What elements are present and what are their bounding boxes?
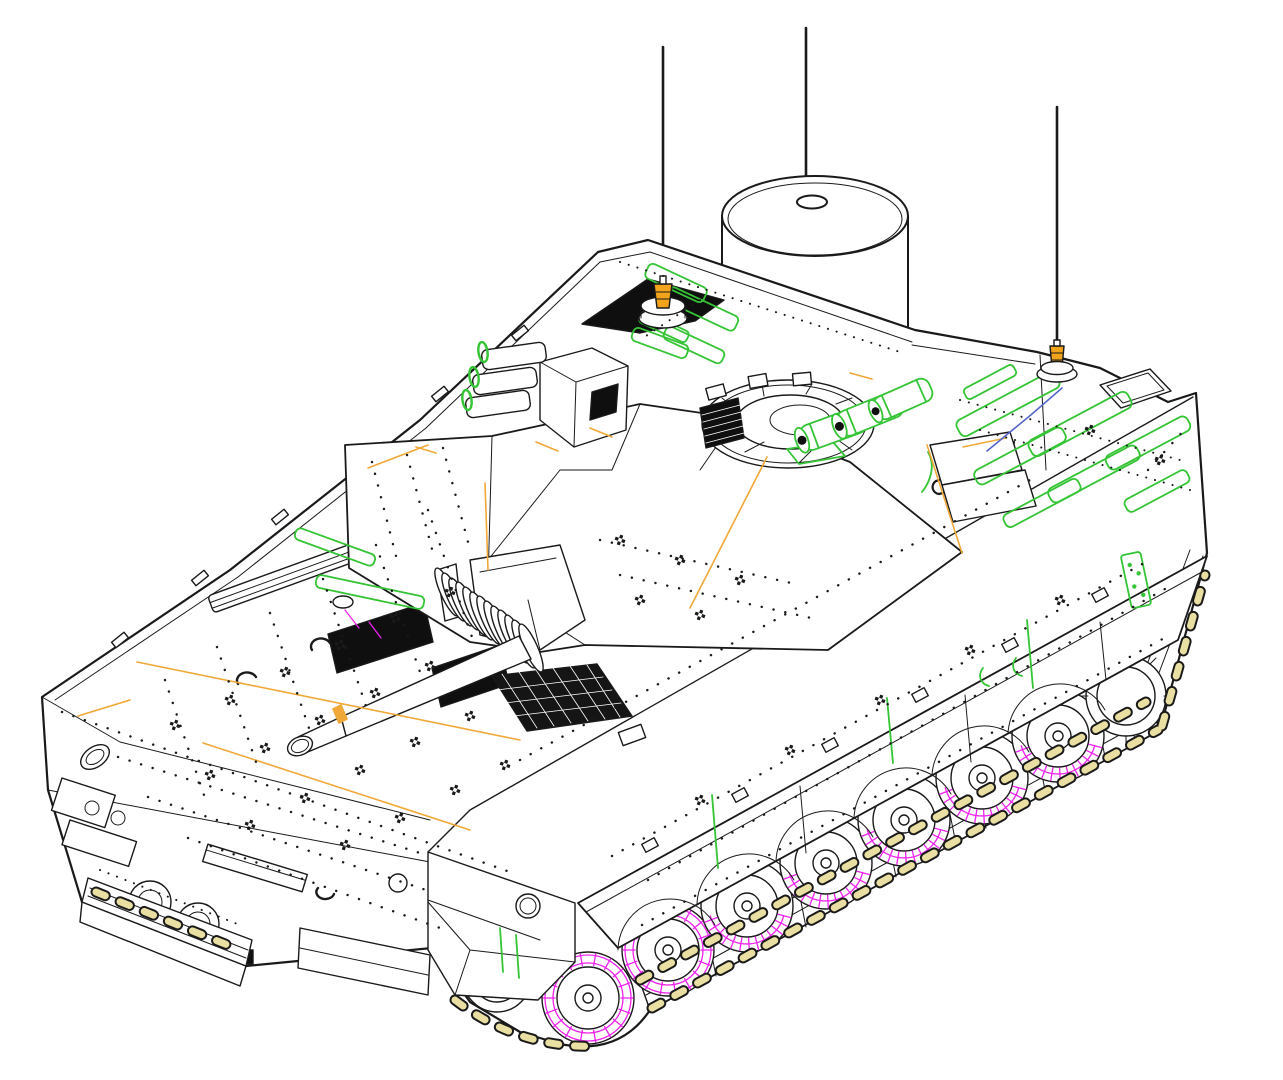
- technical-drawing-canvas: [0, 0, 1283, 1080]
- deck-ring: [333, 596, 353, 608]
- antenna-1-amber-base: [654, 284, 672, 308]
- vehicle-line-drawing: [0, 0, 1283, 1080]
- deck-ring: [389, 874, 407, 892]
- drum-top-knob: [797, 196, 827, 209]
